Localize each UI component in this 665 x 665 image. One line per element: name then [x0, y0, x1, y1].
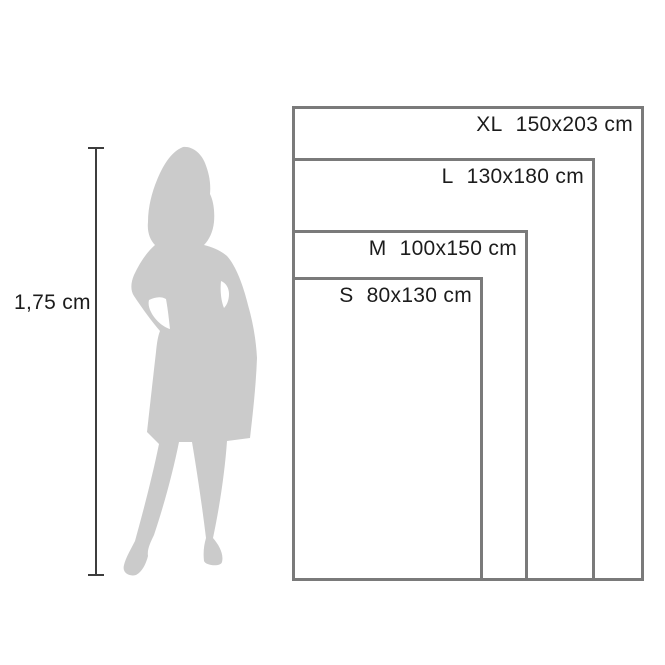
size-label-l: L 130x180 cm: [442, 165, 584, 189]
size-label-s: S 80x130 cm: [339, 284, 472, 308]
height-label: 1,75 cm: [14, 291, 91, 315]
measure-cap-top-icon: [88, 147, 104, 149]
size-dimensions-l: 130x180 cm: [467, 165, 584, 189]
size-code-xl: XL: [476, 113, 502, 137]
size-code-l: L: [442, 165, 454, 189]
size-dimensions-xl: 150x203 cm: [516, 113, 633, 137]
size-code-s: S: [339, 284, 353, 308]
measure-cap-bottom-icon: [88, 574, 104, 576]
size-label-xl: XL 150x203 cm: [476, 113, 633, 137]
size-dimensions-m: 100x150 cm: [400, 237, 517, 261]
measure-line: [95, 148, 97, 576]
woman-silhouette-path: [124, 147, 257, 576]
size-dimensions-s: 80x130 cm: [367, 284, 472, 308]
size-label-m: M 100x150 cm: [369, 237, 517, 261]
size-code-m: M: [369, 237, 387, 261]
size-rect-s: S 80x130 cm: [292, 277, 483, 581]
size-chart-diagram: 1,75 cm XL 150x203 cm L 130x180 cm M 100…: [0, 0, 665, 665]
